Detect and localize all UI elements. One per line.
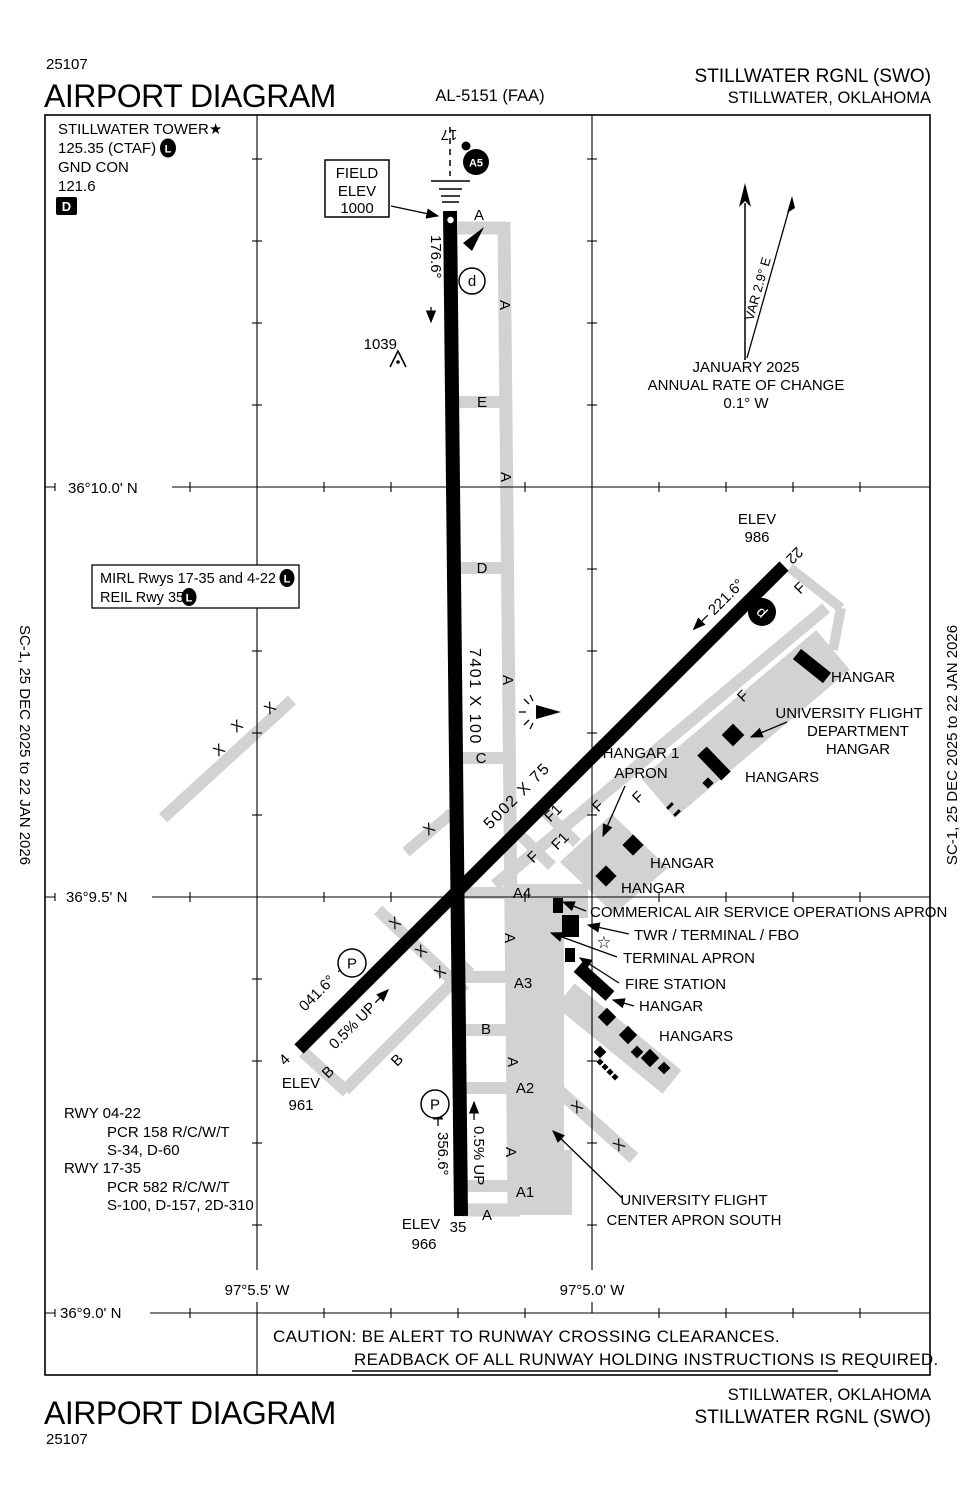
twr-terminal-fbo-label: TWR / TERMINAL / FBO bbox=[634, 927, 799, 944]
runway-35-number: 35 bbox=[450, 1219, 467, 1236]
hangar-label: HANGAR bbox=[650, 855, 714, 872]
commercial-apron-label: COMMERICAL AIR SERVICE OPERATIONS APRON bbox=[590, 904, 947, 921]
terminal-apron-label: TERMINAL APRON bbox=[623, 950, 755, 967]
variation-label: VAR 2.9° E bbox=[742, 255, 774, 322]
longitude-label: 97°5.5' W bbox=[225, 1282, 291, 1299]
closed-x-mark: X bbox=[228, 717, 246, 737]
hangar-label: HANGAR bbox=[621, 880, 685, 897]
airport-diagram-page: 25107 AIRPORT DIAGRAM AL-5151 (FAA) STIL… bbox=[0, 0, 978, 1500]
univ-dept-hangar-label3: HANGAR bbox=[826, 741, 890, 758]
runway-04-22-dimensions: 5002 X 75 bbox=[481, 760, 554, 833]
elev-rwy22: 986 bbox=[744, 529, 769, 546]
effective-date-right: SC-1, 25 DEC 2025 to 22 JAN 2026 bbox=[944, 625, 961, 865]
parking-letter: P bbox=[347, 956, 357, 973]
runway-data-line: S-100, D-157, 2D-310 bbox=[107, 1197, 254, 1214]
annual-rate-label: ANNUAL RATE OF CHANGE bbox=[648, 377, 845, 394]
taxiway-label-a: A bbox=[496, 300, 513, 310]
caution-line2: READBACK OF ALL RUNWAY HOLDING INSTRUCTI… bbox=[354, 1350, 939, 1369]
runway-data-line: PCR 582 R/C/W/T bbox=[107, 1179, 230, 1196]
lighting-badge-letter: L bbox=[284, 574, 291, 586]
runway-17-35 bbox=[450, 211, 461, 1216]
hangar-label: HANGAR bbox=[831, 669, 895, 686]
airport-diagram-chart: 25107 AIRPORT DIAGRAM AL-5151 (FAA) STIL… bbox=[0, 0, 978, 1500]
runway-data-line: RWY 17-35 bbox=[64, 1160, 141, 1177]
fire-station-label: FIRE STATION bbox=[625, 976, 726, 993]
taxiway-label-a: A bbox=[482, 1207, 492, 1224]
taxiway-label-e: E bbox=[477, 394, 487, 411]
univ-south-label1: UNIVERSITY FLIGHT bbox=[620, 1192, 767, 1209]
al-number: AL-5151 (FAA) bbox=[435, 87, 544, 105]
elev-label: ELEV bbox=[402, 1216, 440, 1233]
univ-dept-hangar-label1: UNIVERSITY FLIGHT bbox=[775, 705, 922, 722]
runway-data-line: RWY 04-22 bbox=[64, 1105, 141, 1122]
taxiway-label-a1: A1 bbox=[516, 1184, 534, 1201]
lighting-badge-letter: L bbox=[186, 593, 193, 605]
taxiway-label-a4: A4 bbox=[513, 885, 531, 902]
taxiway-label-a: A bbox=[497, 472, 514, 482]
hold-sign-a5-label: A5 bbox=[469, 158, 483, 170]
elev-rwy35: 966 bbox=[411, 1236, 436, 1253]
fire-station-building bbox=[565, 948, 575, 962]
university-apron-south bbox=[516, 1150, 572, 1215]
taxiway-label-a: A bbox=[501, 933, 518, 943]
lighting-badge-letter: L bbox=[165, 144, 172, 156]
run-up-pad-letter: d bbox=[468, 273, 476, 290]
taxiway-label-b: B bbox=[388, 1051, 407, 1070]
field-elev-line1: FIELD bbox=[336, 165, 379, 182]
taxiway-label-a: A bbox=[504, 1057, 521, 1067]
latitude-label: 36°9.0' N bbox=[60, 1305, 121, 1322]
latitude-label: 36°9.5' N bbox=[66, 889, 127, 906]
tower-name: STILLWATER TOWER★ bbox=[58, 121, 222, 138]
taxiway-label-b: B bbox=[481, 1021, 491, 1038]
effective-date-left: SC-1, 25 DEC 2025 to 22 JAN 2026 bbox=[16, 625, 33, 865]
field-elev-arrow bbox=[391, 206, 438, 216]
runway-17-35-dimensions: 7401 X 100 bbox=[466, 648, 483, 745]
compass-month: JANUARY 2025 bbox=[692, 359, 799, 376]
runway-35-heading: 356.6° bbox=[434, 1132, 451, 1176]
closed-taxiway-nw bbox=[163, 700, 292, 818]
taxiway-label-a: A bbox=[474, 207, 484, 224]
runway-data-line: PCR 158 R/C/W/T bbox=[107, 1124, 230, 1141]
hangars-label: HANGARS bbox=[745, 769, 819, 786]
runway-17-threshold-dot bbox=[447, 217, 453, 223]
chart-number: 25107 bbox=[46, 56, 88, 73]
tower-frequency: 125.35 (CTAF) bbox=[58, 140, 156, 157]
ground-control-label: GND CON bbox=[58, 159, 129, 176]
hangar-label: HANGAR bbox=[639, 998, 703, 1015]
field-elev-line2: ELEV bbox=[338, 183, 376, 200]
footer-airport-name: STILLWATER RGNL (SWO) bbox=[695, 1407, 931, 1428]
taxiway-label-a3: A3 bbox=[514, 975, 532, 992]
annual-rate-value: 0.1° W bbox=[723, 395, 769, 412]
elev-label: ELEV bbox=[282, 1075, 320, 1092]
mirl-note: MIRL Rwys 17-35 and 4-22 bbox=[100, 571, 276, 587]
univ-south-label2: CENTER APRON SOUTH bbox=[606, 1212, 781, 1229]
hangar1-apron-label: HANGAR 1 bbox=[603, 745, 680, 762]
runway-17-number: 17 bbox=[441, 126, 458, 143]
runway-22-number: 22 bbox=[782, 543, 806, 567]
d-badge-letter: D bbox=[62, 199, 71, 214]
star-icon: ☆ bbox=[596, 933, 612, 952]
taxiway-label-c: C bbox=[476, 750, 487, 767]
runway-data-line: S-34, D-60 bbox=[107, 1142, 180, 1159]
runway-17-heading: 176.6° bbox=[427, 235, 444, 279]
footer-city: STILLWATER, OKLAHOMA bbox=[728, 1386, 931, 1404]
taxiway-label-a: A bbox=[499, 675, 516, 685]
hold-sign-dot bbox=[462, 142, 471, 151]
beacon-icon bbox=[519, 695, 561, 729]
hangars-label: HANGARS bbox=[659, 1028, 733, 1045]
footer-title: AIRPORT DIAGRAM bbox=[44, 1395, 336, 1431]
reil-note: REIL Rwy 35 bbox=[100, 590, 184, 606]
parking-letter: P bbox=[430, 1097, 440, 1114]
taxiway-label-f: F bbox=[629, 788, 648, 807]
elev-rwy04: 961 bbox=[288, 1097, 313, 1114]
hangar1-apron-label2: APRON bbox=[614, 765, 667, 782]
field-elev-value: 1000 bbox=[340, 200, 373, 217]
runway-35-slope: 0.5% UP bbox=[470, 1126, 487, 1185]
twr-terminal-fbo-building bbox=[562, 915, 579, 937]
airport-name: STILLWATER RGNL (SWO) bbox=[695, 66, 931, 87]
taxiway-label-a2: A2 bbox=[516, 1080, 534, 1097]
caution-line1: CAUTION: BE ALERT TO RUNWAY CROSSING CLE… bbox=[273, 1327, 780, 1346]
univ-dept-hangar-label2: DEPARTMENT bbox=[807, 723, 909, 740]
page-title: AIRPORT DIAGRAM bbox=[44, 78, 336, 114]
runway-04-number: 4 bbox=[276, 1051, 294, 1069]
obstacle-elevation: 1039 bbox=[364, 336, 397, 353]
longitude-label: 97°5.0' W bbox=[560, 1282, 626, 1299]
taxiway-label-a: A bbox=[502, 1147, 519, 1157]
latitude-label: 36°10.0' N bbox=[68, 480, 138, 497]
elev-label: ELEV bbox=[738, 511, 776, 528]
hangar-arrow bbox=[613, 1000, 634, 1006]
footer-chart-number: 25107 bbox=[46, 1431, 88, 1448]
airport-city: STILLWATER, OKLAHOMA bbox=[728, 89, 931, 107]
taxiway-label-d: D bbox=[477, 560, 488, 577]
obstacle-icon bbox=[390, 351, 406, 367]
ground-frequency: 121.6 bbox=[58, 178, 96, 195]
